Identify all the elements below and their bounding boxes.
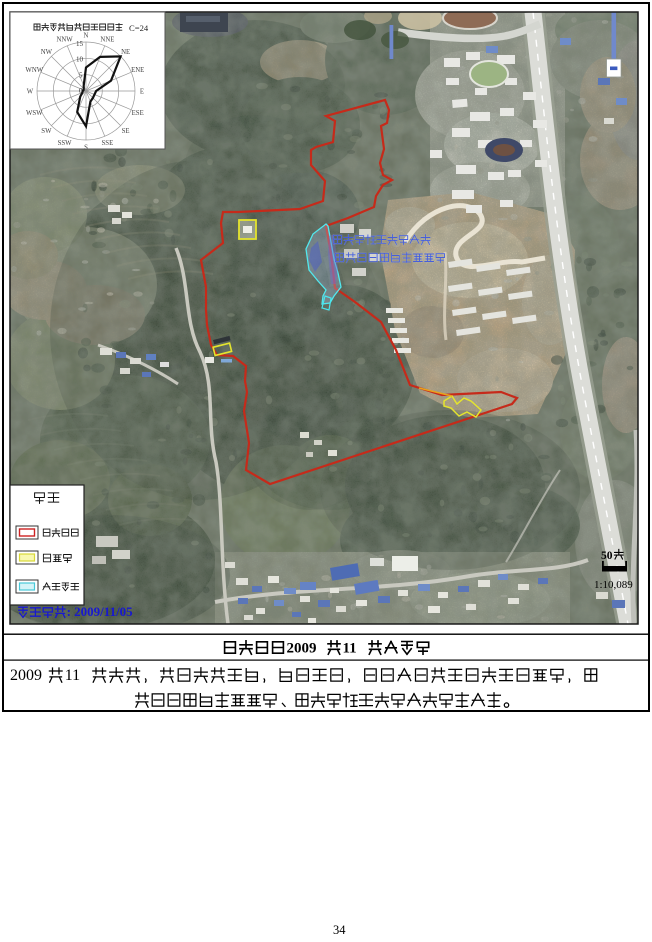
svg-text:WNW: WNW [25,67,43,74]
svg-text:34: 34 [333,923,346,937]
svg-text:ESE: ESE [132,110,144,117]
svg-text:11: 11 [65,667,80,684]
svg-text:11: 11 [343,640,357,656]
svg-text:SSW: SSW [58,140,73,147]
svg-text:5: 5 [79,72,83,80]
svg-text:: 2009/11/05: : 2009/11/05 [67,604,134,619]
svg-text:E: E [140,88,144,95]
svg-text:NW: NW [41,49,53,56]
svg-text:S: S [84,144,88,151]
svg-text:WSW: WSW [26,110,43,117]
svg-text:2009: 2009 [287,640,317,656]
svg-text:50: 50 [601,550,613,562]
svg-text:2009: 2009 [10,667,42,684]
svg-text:N: N [84,32,89,39]
svg-text:SSE: SSE [102,140,114,147]
svg-text:10: 10 [76,55,84,63]
svg-text:SW: SW [41,128,52,135]
svg-text:NNW: NNW [56,37,73,44]
svg-text:15: 15 [76,40,84,48]
svg-text:W: W [27,88,34,95]
svg-text:ENE: ENE [131,67,144,74]
svg-text:C=24: C=24 [129,23,149,33]
svg-text:1:10,089: 1:10,089 [594,579,633,591]
svg-text:NE: NE [121,49,130,56]
svg-text:NNE: NNE [100,37,114,44]
svg-text:SE: SE [122,128,130,135]
